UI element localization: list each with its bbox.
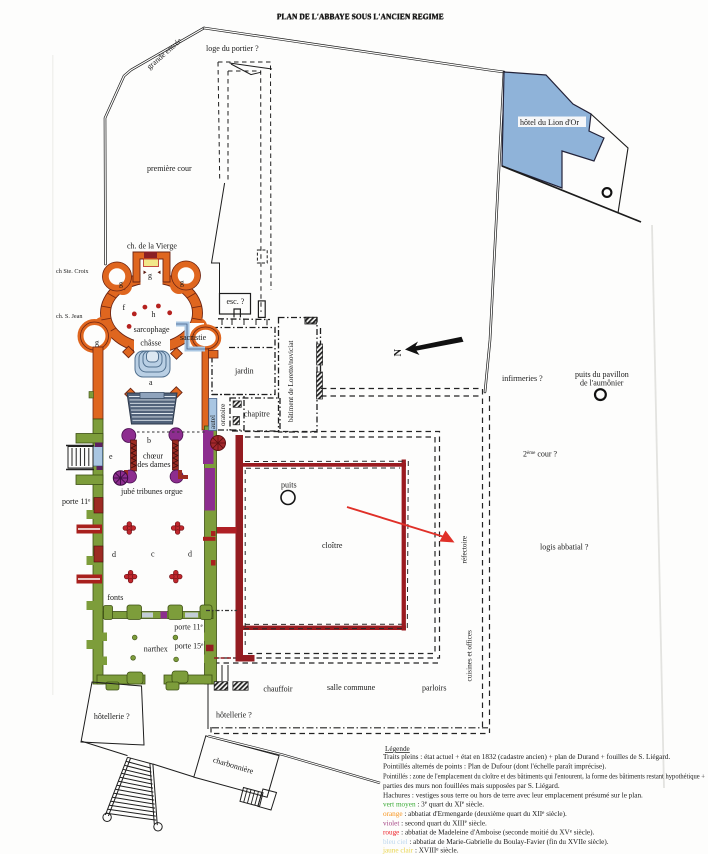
- svg-text:vert moyen : 3e quart du XIe s: vert moyen : 3e quart du XIe siècle.: [383, 800, 484, 808]
- svg-text:porte 11e: porte 11e: [174, 623, 203, 632]
- svg-text:autel: autel: [209, 415, 217, 429]
- svg-text:porte 15e: porte 15e: [175, 642, 204, 651]
- svg-text:des dames: des dames: [137, 460, 170, 469]
- svg-text:Hachures : vestiges sous terre: Hachures : vestiges sous terre ou hors d…: [383, 792, 643, 800]
- svg-text:puits: puits: [281, 481, 297, 490]
- svg-text:hôtel du Lion d'Or: hôtel du Lion d'Or: [520, 118, 579, 127]
- svg-text:Légende: Légende: [385, 745, 410, 753]
- svg-text:oratoire: oratoire: [219, 404, 227, 426]
- svg-text:N: N: [393, 349, 404, 357]
- svg-text:parloirs: parloirs: [422, 684, 446, 693]
- svg-text:de l'aumônier: de l'aumônier: [580, 379, 624, 388]
- svg-text:f: f: [123, 303, 126, 312]
- svg-text:Pointillés alternés de points: Pointillés alternés de points : Plan de …: [383, 763, 606, 771]
- svg-text:infirmeries ?: infirmeries ?: [502, 374, 543, 383]
- svg-text:parties des murs non fouillées: parties des murs non fouillées mais supp…: [383, 782, 560, 790]
- svg-text:rouge : abbatiat de Madeleine: rouge : abbatiat de Madeleine d'Amboise …: [383, 829, 595, 837]
- svg-text:d: d: [112, 550, 116, 559]
- svg-text:jaune clair : XVIIIe siècle.: jaune clair : XVIIIe siècle.: [382, 847, 459, 854]
- svg-text:sacristie: sacristie: [180, 333, 207, 342]
- svg-text:jubé tribunes orgue: jubé tribunes orgue: [120, 487, 183, 496]
- svg-text:ch. de la Vierge: ch. de la Vierge: [127, 242, 177, 251]
- svg-text:h: h: [152, 310, 156, 319]
- svg-text:réfectoire: réfectoire: [461, 536, 469, 564]
- svg-text:ch. S. Jean: ch. S. Jean: [56, 313, 82, 320]
- svg-text:violet : second quart du XIIIe: violet : second quart du XIIIe siècle.: [383, 819, 487, 827]
- svg-text:Traits pleins : état actuel +: Traits pleins : état actuel + état en 18…: [383, 753, 670, 761]
- svg-text:cuisines et offices: cuisines et offices: [466, 630, 474, 682]
- svg-text:cloître: cloître: [322, 541, 343, 550]
- svg-text:b: b: [147, 436, 151, 445]
- svg-text:bâtiment de Lorette/noviciat: bâtiment de Lorette/noviciat: [287, 341, 295, 422]
- svg-text:bleu ciel : abbatiat de Marie-: bleu ciel : abbatiat de Marie-Gabrielle …: [383, 838, 609, 846]
- svg-text:logis abbatial ?: logis abbatial ?: [540, 543, 589, 552]
- svg-text:chapitre: chapitre: [244, 410, 270, 419]
- svg-text:g: g: [180, 278, 184, 287]
- svg-text:d: d: [188, 550, 192, 559]
- svg-text:PLAN DE L'ABBAYE SOUS L'ANCIEN: PLAN DE L'ABBAYE SOUS L'ANCIEN REGIME: [277, 12, 444, 21]
- svg-text:fonts: fonts: [107, 593, 123, 602]
- svg-text:g: g: [95, 338, 99, 347]
- svg-text:salle commune: salle commune: [327, 683, 376, 692]
- svg-text:sarcophage: sarcophage: [134, 325, 170, 334]
- svg-text:loge du portier ?: loge du portier ?: [206, 44, 259, 53]
- svg-text:jardin: jardin: [234, 367, 254, 376]
- svg-text:e: e: [109, 452, 113, 461]
- svg-text:hôtellerie ?: hôtellerie ?: [216, 711, 252, 720]
- svg-text:chauffoir: chauffoir: [263, 685, 293, 694]
- svg-text:porte 11e: porte 11e: [62, 497, 91, 506]
- svg-text:g: g: [119, 279, 123, 288]
- svg-text:esc. ?: esc. ?: [227, 297, 245, 306]
- svg-text:orange : abbatiat d'Ermengarde: orange : abbatiat d'Ermengarde (deuxième…: [383, 810, 567, 818]
- svg-text:a: a: [149, 378, 153, 387]
- svg-text:narthex: narthex: [144, 645, 168, 654]
- svg-text:c: c: [151, 550, 155, 559]
- svg-text:châsse: châsse: [140, 339, 161, 348]
- svg-text:ch Ste. Croix: ch Ste. Croix: [56, 268, 89, 275]
- svg-text:hôtellerie ?: hôtellerie ?: [94, 712, 130, 721]
- svg-text:Pointillés : zone de l'emplace: Pointillés : zone de l'emplacement du cl…: [383, 772, 705, 780]
- svg-text:g: g: [148, 271, 152, 280]
- svg-text:première cour: première cour: [147, 164, 192, 173]
